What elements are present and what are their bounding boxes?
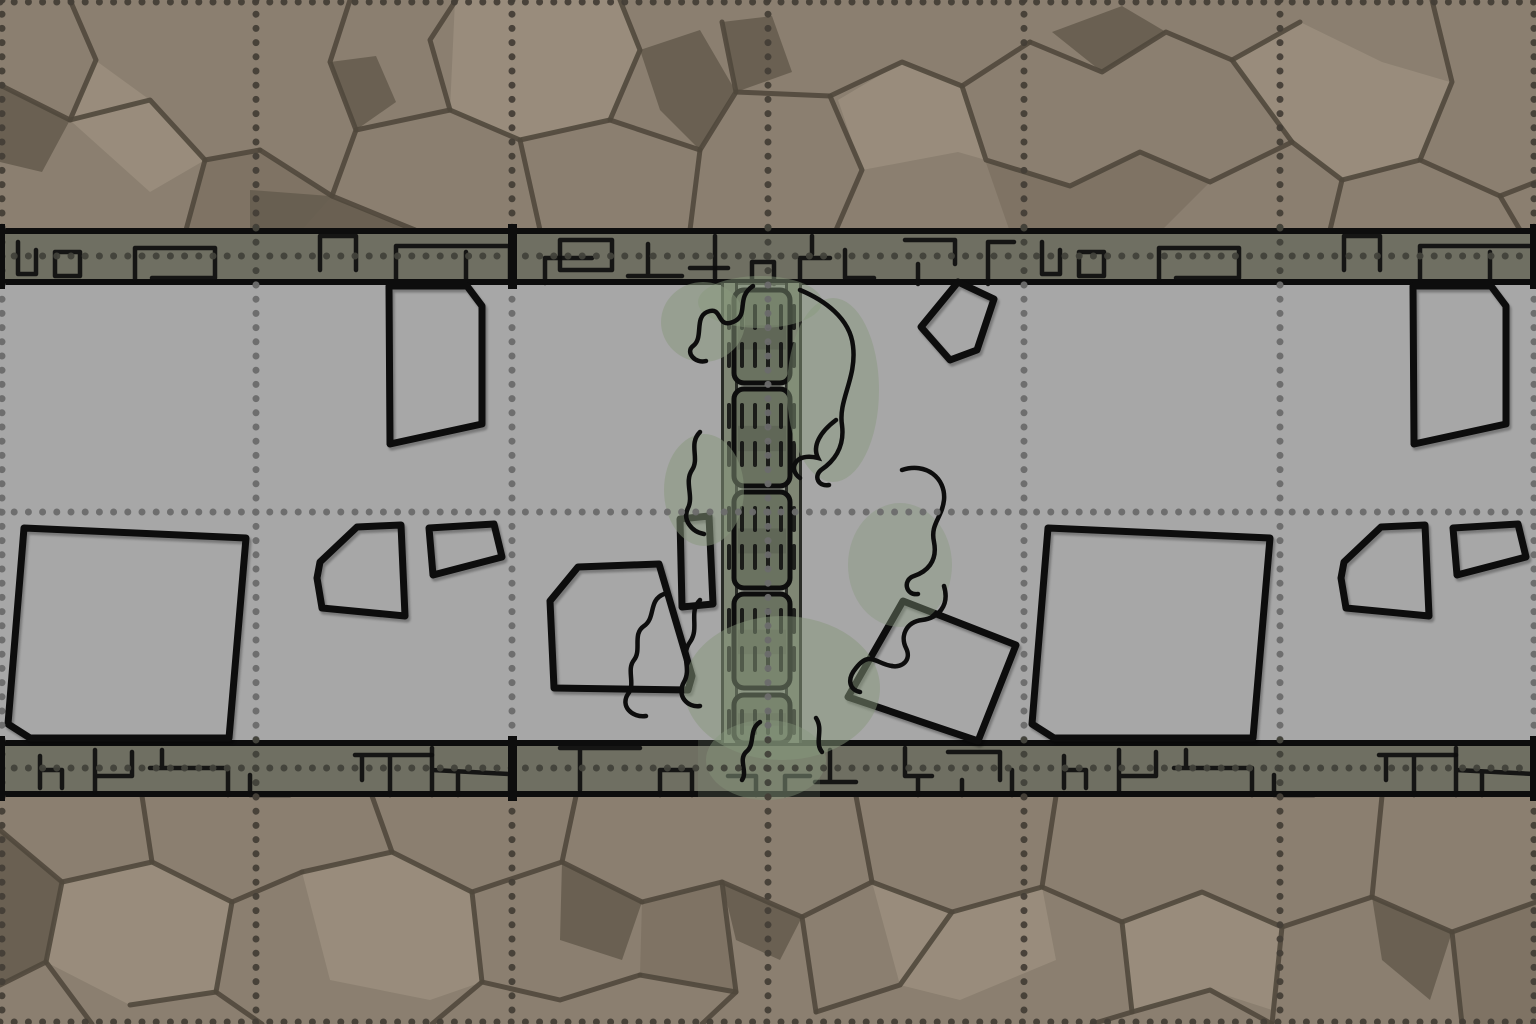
plank-groove (779, 403, 783, 429)
bridge-plank-shade (738, 528, 786, 553)
tile-seam-bar (1530, 224, 1536, 289)
plank-groove (727, 544, 731, 570)
plank-groove (740, 403, 744, 429)
plank-groove (753, 403, 757, 429)
battle-map[interactable] (0, 0, 1536, 1024)
bridge-plank-shade (738, 325, 786, 349)
plank-groove (779, 544, 783, 570)
tile-seam-bar (1530, 736, 1536, 801)
plank-groove (727, 403, 731, 429)
plank-groove (753, 342, 757, 368)
tile-seam-bar (0, 224, 5, 289)
moss-patch (664, 434, 744, 546)
moss-wall-tint (698, 740, 820, 797)
plank-groove (740, 441, 744, 467)
tile-seam-bar (0, 736, 5, 801)
plank-groove (740, 342, 744, 368)
moss-patch (787, 298, 879, 482)
plank-groove (779, 441, 783, 467)
battle-map-canvas[interactable] (0, 0, 1536, 1024)
tile-seam-bar (508, 736, 517, 801)
plank-groove (779, 342, 783, 368)
plank-groove (792, 544, 796, 570)
plank-groove (740, 544, 744, 570)
plank-groove (753, 441, 757, 467)
tile-seam-bar (508, 224, 517, 289)
plank-groove (753, 544, 757, 570)
bridge-plank-shade (738, 426, 786, 451)
